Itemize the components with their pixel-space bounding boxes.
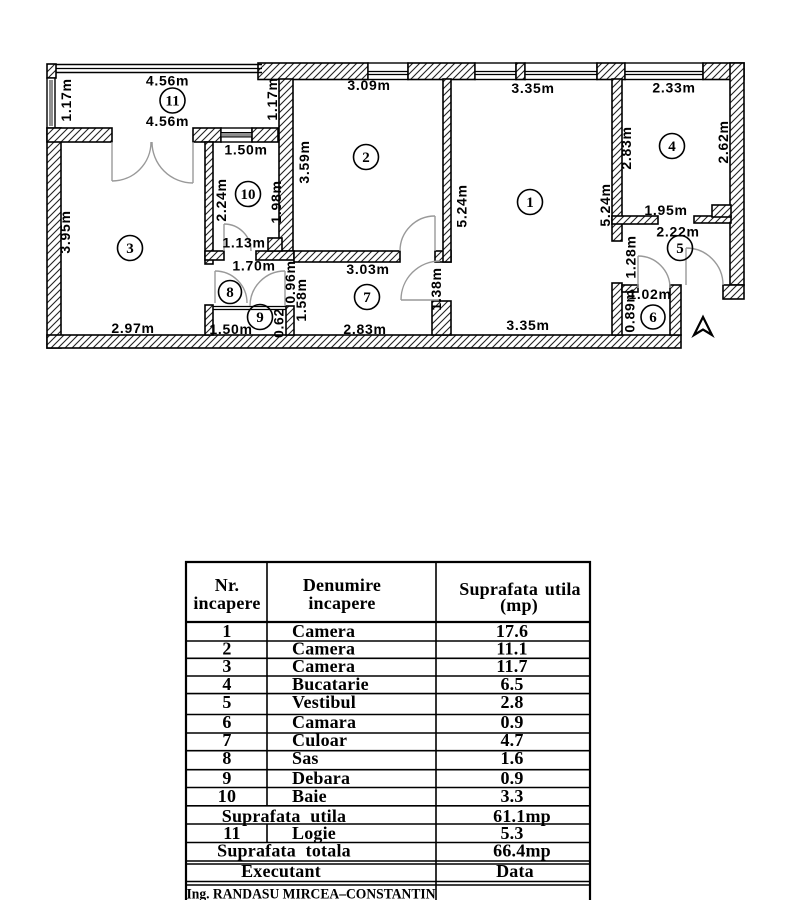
svg-text:4: 4 [668,139,676,155]
svg-text:Camara: Camara [292,712,356,732]
svg-text:6: 6 [222,712,231,732]
svg-text:Camera: Camera [292,656,355,676]
svg-text:5: 5 [676,241,684,257]
svg-text:3.03m: 3.03m [346,261,389,277]
svg-text:66.4mp: 66.4mp [493,841,551,861]
svg-text:10: 10 [241,187,256,203]
svg-text:Executant: Executant [241,861,321,881]
svg-text:3: 3 [126,241,134,257]
svg-text:1.13m: 1.13m [222,235,265,251]
svg-text:3.09m: 3.09m [347,77,390,93]
svg-text:0.62: 0.62 [271,308,287,338]
svg-text:5.24m: 5.24m [454,184,470,227]
svg-text:1.17m: 1.17m [58,78,74,121]
svg-text:3: 3 [222,656,231,676]
svg-text:4.7: 4.7 [500,730,523,750]
svg-text:1.70m: 1.70m [232,258,275,274]
svg-text:(mp): (mp) [500,595,538,616]
svg-text:Suprafata totala: Suprafata totala [217,841,351,861]
svg-text:3.59m: 3.59m [296,140,312,183]
svg-text:11.7: 11.7 [496,656,527,676]
svg-text:0.89m: 0.89m [622,289,638,332]
svg-text:1.58m: 1.58m [293,278,309,321]
svg-text:4.56m: 4.56m [146,73,189,89]
svg-text:1.17m: 1.17m [264,77,280,120]
svg-text:2.22m: 2.22m [656,224,699,240]
svg-text:Vestibul: Vestibul [292,692,356,712]
svg-text:0.9: 0.9 [500,712,523,732]
svg-text:6: 6 [649,310,657,326]
svg-text:1.38m: 1.38m [428,267,444,310]
svg-text:3.95m: 3.95m [57,210,73,253]
svg-text:Bucatarie: Bucatarie [292,674,369,694]
svg-text:1: 1 [526,195,534,211]
svg-text:7: 7 [222,730,231,750]
svg-text:2.33m: 2.33m [652,80,695,96]
svg-text:Ing. RANDASU MIRCEA–CONSTANTIN: Ing. RANDASU MIRCEA–CONSTANTIN [187,887,436,900]
svg-text:Denumire: Denumire [303,575,381,595]
svg-text:2.83m: 2.83m [618,126,634,169]
svg-text:Debara: Debara [292,768,350,788]
svg-text:3.3: 3.3 [500,786,523,806]
svg-text:Data: Data [496,861,534,881]
svg-text:Nr.: Nr. [215,575,239,595]
svg-text:1.95m: 1.95m [644,202,687,218]
svg-text:5.24m: 5.24m [597,183,613,226]
svg-text:1.50m: 1.50m [209,321,252,337]
svg-text:2: 2 [362,150,370,166]
svg-text:8: 8 [222,748,231,768]
svg-text:incapere: incapere [308,593,375,613]
svg-text:Culoar: Culoar [292,730,347,750]
svg-text:3.35m: 3.35m [511,80,554,96]
svg-text:5: 5 [222,692,231,712]
svg-text:3.35m: 3.35m [506,317,549,333]
svg-text:4: 4 [222,674,231,694]
svg-text:1.28m: 1.28m [623,235,639,278]
svg-text:6.5: 6.5 [500,674,523,694]
svg-text:8: 8 [226,285,234,301]
svg-text:1.50m: 1.50m [224,142,267,158]
svg-text:2.24m: 2.24m [213,178,229,221]
svg-text:9: 9 [222,768,231,788]
svg-text:incapere: incapere [193,593,260,613]
svg-text:1.98m: 1.98m [268,180,284,223]
svg-text:2.8: 2.8 [500,692,523,712]
svg-text:10: 10 [218,786,236,806]
svg-text:4.56m: 4.56m [146,113,189,129]
svg-text:11: 11 [165,94,179,110]
svg-text:0.9: 0.9 [500,768,523,788]
svg-text:1.6: 1.6 [500,748,523,768]
svg-text:2.62m: 2.62m [715,120,731,163]
svg-text:Baie: Baie [292,786,327,806]
svg-text:7: 7 [363,290,371,306]
svg-text:2.97m: 2.97m [111,320,154,336]
svg-text:9: 9 [256,310,264,326]
svg-text:Sas: Sas [292,748,319,768]
svg-text:2.83m: 2.83m [343,321,386,337]
